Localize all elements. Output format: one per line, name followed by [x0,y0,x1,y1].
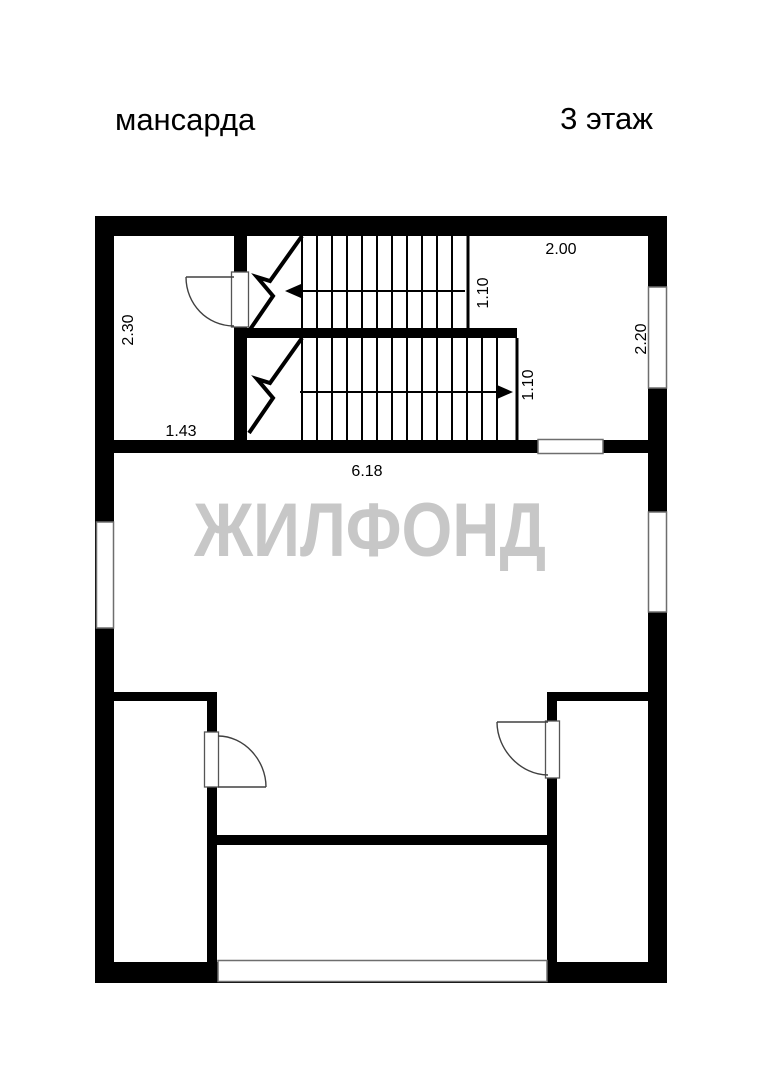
window-bottom-wide [218,961,547,982]
watermark-text: ЖИЛФОНД [193,488,546,573]
opening-mid-wall [538,440,603,454]
window-right-upper [649,287,667,388]
wall-center-room-top [207,835,557,845]
window-left [97,522,114,628]
wall-top [95,216,667,236]
floorplan-page: мансарда 3 этаж ЖИЛФОНД [0,0,764,1080]
floor-title-right: 3 этаж [560,101,653,136]
window-right-lower [649,512,667,612]
dim-landing-width: 2.00 [545,241,576,258]
dim-main-room-width: 6.18 [351,463,382,480]
door-jamb [232,272,249,327]
stair-upper-flight [249,236,468,331]
floor-title-left: мансарда [115,102,256,137]
wall-stair-room-divider [234,236,247,440]
dim-top-left-room-depth: 2.30 [120,314,137,345]
dim-upper-flight-width: 1.10 [475,277,492,308]
door-top-left-room [186,272,249,327]
dim-right-wall-section: 2.20 [633,323,650,354]
dim-lower-flight-width: 1.10 [520,369,537,400]
wall-flight-divider [247,328,517,338]
door-jamb [205,732,219,787]
door-swing-arc [497,722,548,775]
door-bottom-right-room [497,721,560,778]
arrow-left-icon [285,284,301,298]
door-swing-arc [218,736,266,787]
wall-right-room-top [547,692,648,701]
floorplan-drawing: мансарда 3 этаж ЖИЛФОНД [0,0,764,1080]
stair-break-symbol [249,338,302,433]
stair-break-symbol [249,236,302,331]
dim-top-left-room-width: 1.43 [165,423,196,440]
arrow-right-icon [497,385,513,399]
door-bottom-left-room [205,732,267,787]
stair-lower-flight [249,338,517,440]
door-jamb [546,721,560,778]
wall-left-room-top [113,692,217,701]
interior-walls [113,236,648,962]
door-swing-arc [186,277,234,326]
